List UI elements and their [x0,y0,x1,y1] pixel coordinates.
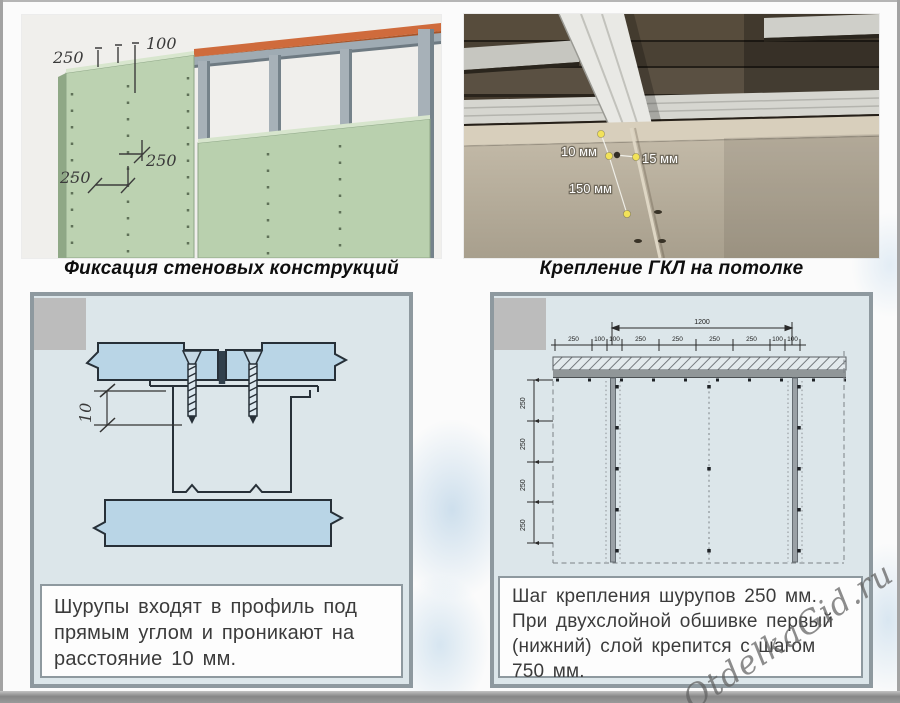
dim-100-top: 100 [146,34,177,53]
top-dim: 250 [746,336,757,343]
frame-border-bottom [0,691,900,703]
caption-line: Шаг крепления шурупов 250 мм. [512,584,849,609]
caption-line: Шурупы входят в профиль под [54,594,389,620]
wall-panel-caption: Фиксация стеновых конструкций [22,258,441,284]
top-dim: 250 [672,336,683,343]
top-dim: 250 [709,336,720,343]
wall-fixing-illustration: 250 100 250 250 [22,15,441,258]
ceiling-hatch [553,357,846,370]
top-dim: 100 [594,336,605,343]
frame-border-left [0,0,3,703]
spacing-caption-box: Шаг крепления шурупов 250 мм. При двухсл… [498,576,863,678]
top-dim: 250 [635,336,646,343]
side-dim: 250 [520,479,527,491]
ceiling-photo-drawing: 10 мм 15 мм 150 мм [464,14,879,258]
dim-250-low: 250 [59,168,91,187]
top-dim: 250 [568,336,579,343]
screw-mark [654,210,662,214]
board-joint-gap [219,351,225,384]
wall-illustration-drawing: 250 100 250 250 [22,15,441,258]
ceiling-attachment-photo: 10 мм 15 мм 150 мм [464,14,879,258]
top-dim: 100 [787,336,798,343]
screw-mark [634,239,642,243]
screw-detail-diagram: 10 [34,296,409,582]
board-edges-dashed [553,351,844,563]
side-dim: 250 [520,397,527,409]
dim-250-mid: 250 [145,151,177,170]
caption-line: расстояние 10 мм. [54,646,389,672]
caption-line: (нижний) слой крепится с шагом [512,634,849,659]
label-15mm: 15 мм [642,151,678,166]
caption-line: прямым углом и проникают на [54,620,389,646]
top-dim: 100 [772,336,783,343]
depth-dimension [94,384,182,432]
screw-spacing-diagram: 1200 250 100 100 250 250 250 250 100 100 [494,296,869,574]
side-dim: 250 [520,519,527,531]
frame-border-top [0,0,900,2]
screw-caption-box: Шурупы входят в профиль под прямым углом… [40,584,403,678]
track [553,370,846,377]
screw-mark [658,239,666,243]
dim-10: 10 [76,403,95,423]
caption-line: 750 мм. [512,659,849,684]
screw-detail-panel: 10 Шурупы входят в профиль под прямым уг… [30,292,413,688]
label-10mm: 10 мм [561,144,597,159]
side-dimension [527,378,553,545]
top-dim: 100 [609,336,620,343]
label-150mm: 150 мм [569,181,612,196]
dim-250-top: 250 [52,48,84,67]
dim-1200: 1200 [694,319,710,326]
ceiling-panel-caption: Крепление ГКЛ на потолке [464,258,879,284]
drywall-board [464,116,879,258]
side-dim: 250 [520,438,527,450]
top-boards [87,343,346,380]
caption-line: При двухслойной обшивке первый [512,609,849,634]
screw-spacing-panel: 1200 250 100 100 250 250 250 250 100 100 [490,292,873,688]
bottom-board [94,500,342,546]
infographic-page: 250 100 250 250 Фиксация стеновых констр… [0,0,900,703]
screw-head [614,152,620,158]
gypsum-board-lower [198,119,430,258]
profile-outline [150,381,318,492]
stud-2 [788,378,802,562]
stud-1 [606,378,620,562]
